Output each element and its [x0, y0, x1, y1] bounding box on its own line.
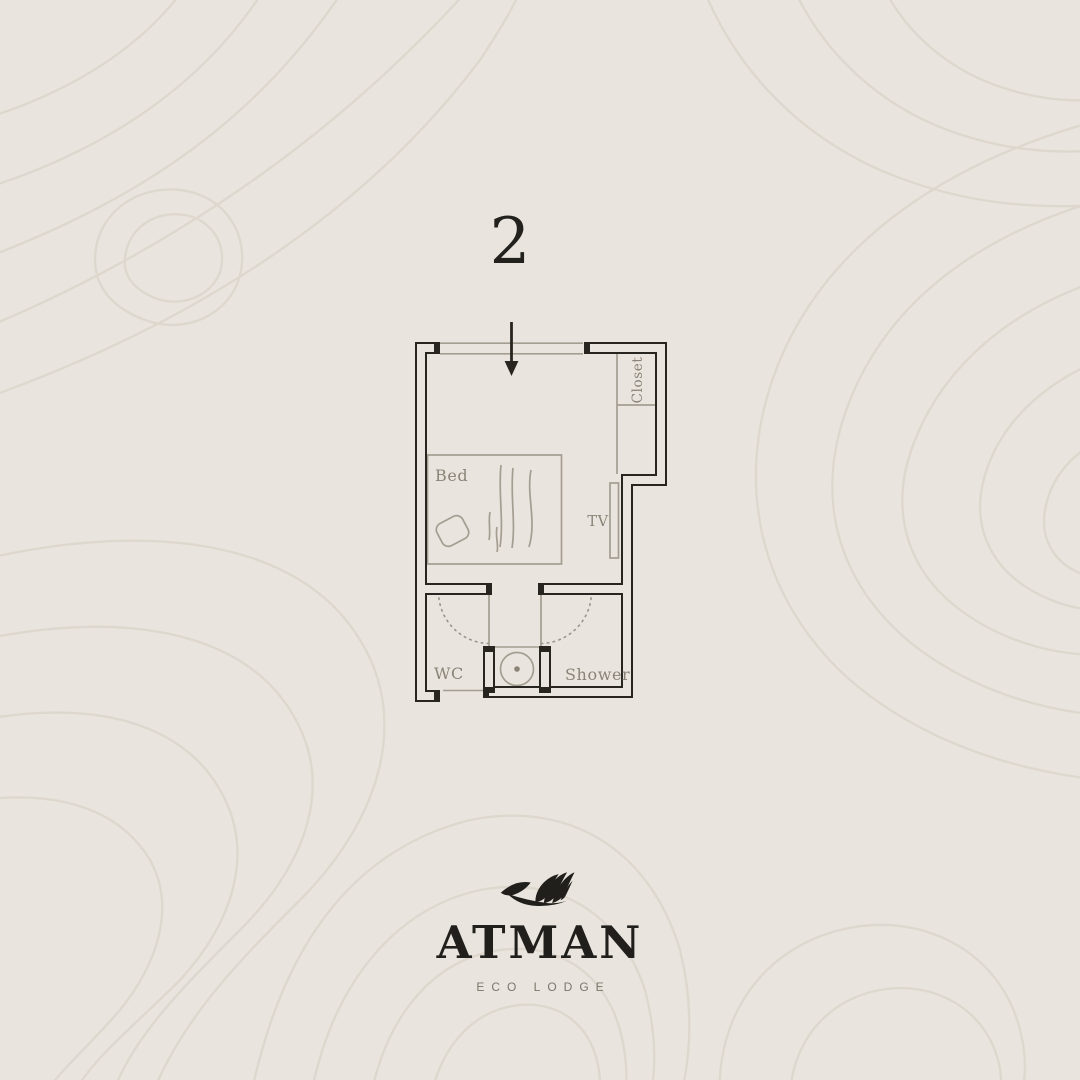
blanket-fold-line — [500, 465, 501, 547]
brand-logo: ATMAN ECO LODGE — [0, 872, 1080, 993]
door-swing-arc — [540, 592, 592, 644]
blanket-fold-line — [489, 512, 490, 540]
tv-label: TV — [587, 514, 608, 530]
brand-tagline: ECO LODGE — [0, 981, 1080, 993]
leaf-icon — [498, 872, 582, 908]
door-swings — [439, 592, 592, 644]
leaf-shape — [501, 872, 575, 906]
room-labels: Bed TV Closet WC Shower — [434, 357, 646, 684]
poster-canvas: 2 — [0, 0, 1080, 1080]
tv-outline — [610, 483, 619, 558]
blanket-fold-line — [529, 470, 532, 547]
sink-drain — [514, 666, 520, 672]
shower-label: Shower — [565, 665, 630, 684]
pillow — [434, 513, 471, 549]
furniture — [428, 354, 656, 686]
arrow-head — [505, 361, 519, 376]
entrance-arrow-icon — [505, 322, 519, 376]
bed-label: Bed — [435, 466, 468, 485]
door-swing-arc — [439, 592, 491, 644]
brand-name: ATMAN — [0, 920, 1080, 965]
blanket-fold-line — [512, 468, 513, 548]
wc-label: WC — [434, 664, 464, 683]
closet-label: Closet — [630, 357, 646, 404]
leaf-blade — [501, 882, 531, 896]
blanket-fold-line — [496, 527, 497, 552]
